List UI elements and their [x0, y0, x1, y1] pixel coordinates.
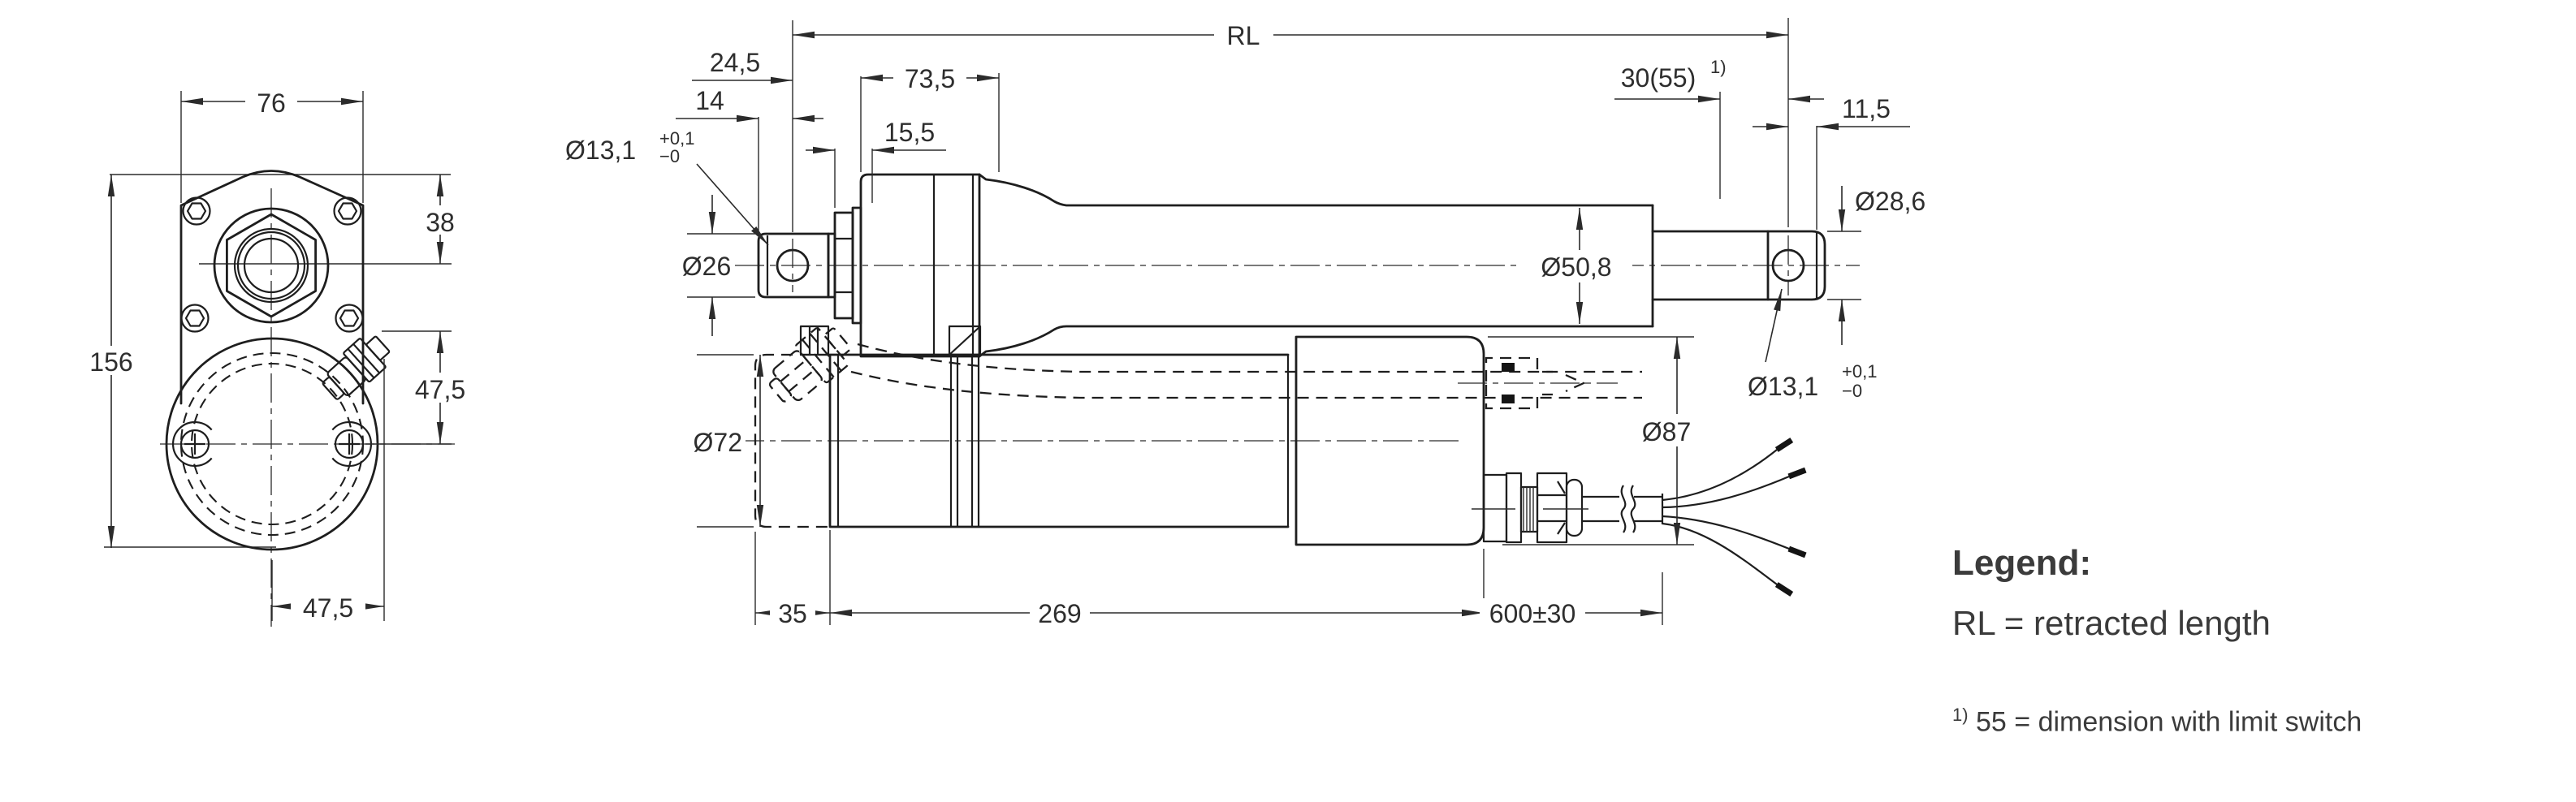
- dim-13-1-rear-tol-minus: −0: [659, 146, 680, 166]
- dim-dia-50-8: Ø50,8: [1541, 252, 1611, 282]
- dim-35: 35: [778, 599, 807, 628]
- dim-14: 14: [695, 86, 724, 115]
- legend-footnote: 1) 55 = dimension with limit switch: [1952, 705, 2553, 738]
- legend: Legend: RL = retracted length 1) 55 = di…: [1952, 545, 2553, 738]
- legend-footnote-superscript: 1): [1952, 705, 1969, 725]
- side-view: RL 24,5 14 73,5 15,5 30(55) 1) 11,5 Ø28,…: [565, 18, 1926, 628]
- legend-footnote-text: 55 = dimension with limit switch: [1976, 706, 2362, 737]
- dim-dia-28-6: Ø28,6: [1855, 187, 1926, 216]
- cable-wires: [1662, 438, 1807, 597]
- dim-bottom-offset-47-5: 47,5: [303, 593, 353, 623]
- dim-height-156: 156: [89, 347, 132, 377]
- dim-width-76: 76: [257, 88, 286, 118]
- front-view: 76 38 156 47,5 47,5: [81, 87, 478, 627]
- actuator-dimension-drawing: 76 38 156 47,5 47,5: [0, 0, 2576, 802]
- dim-30-55: 30(55): [1621, 63, 1696, 93]
- legend-rl-definition: RL = retracted length: [1952, 604, 2553, 643]
- hex-screw-mid-right: [336, 305, 363, 332]
- dim-hole-offset-38: 38: [426, 208, 455, 237]
- front-dimensions: 76 38 156 47,5 47,5: [81, 87, 478, 623]
- dim-13-1-front-tol-plus: +0,1: [1842, 361, 1877, 382]
- dim-dia-26: Ø26: [682, 252, 731, 281]
- motor-assembly: [755, 326, 1484, 545]
- limit-switch-detail: [1458, 358, 1618, 408]
- side-dimensions: RL 24,5 14 73,5 15,5 30(55) 1) 11,5 Ø28,…: [565, 18, 1926, 628]
- hex-screw-mid-left: [182, 305, 209, 332]
- dim-11-5: 11,5: [1842, 94, 1891, 123]
- dim-600-30: 600±30: [1489, 599, 1576, 628]
- legend-title: Legend:: [1952, 545, 2553, 581]
- dim-73-5: 73,5: [905, 64, 955, 93]
- dim-24-5: 24,5: [710, 48, 760, 77]
- dim-269: 269: [1038, 599, 1081, 628]
- dim-30-55-superscript: 1): [1710, 57, 1727, 77]
- hex-screw-top-right: [335, 198, 361, 225]
- hidden-cable-routing: [851, 344, 1642, 398]
- hex-screw-top-left: [184, 198, 210, 225]
- dim-connector-offset-47-5: 47,5: [415, 375, 465, 404]
- dim-dia-72: Ø72: [694, 428, 742, 457]
- dim-dia-13-1-front: Ø13,1: [1748, 372, 1818, 401]
- cable-gland: [1472, 473, 1588, 542]
- dim-dia-87: Ø87: [1642, 417, 1691, 446]
- dim-dia-13-1-rear: Ø13,1: [565, 136, 636, 165]
- dim-15-5: 15,5: [884, 118, 935, 147]
- dim-13-1-front-tol-minus: −0: [1842, 381, 1862, 401]
- dim-retracted-length: RL: [1227, 21, 1260, 50]
- cable: [1582, 485, 1662, 533]
